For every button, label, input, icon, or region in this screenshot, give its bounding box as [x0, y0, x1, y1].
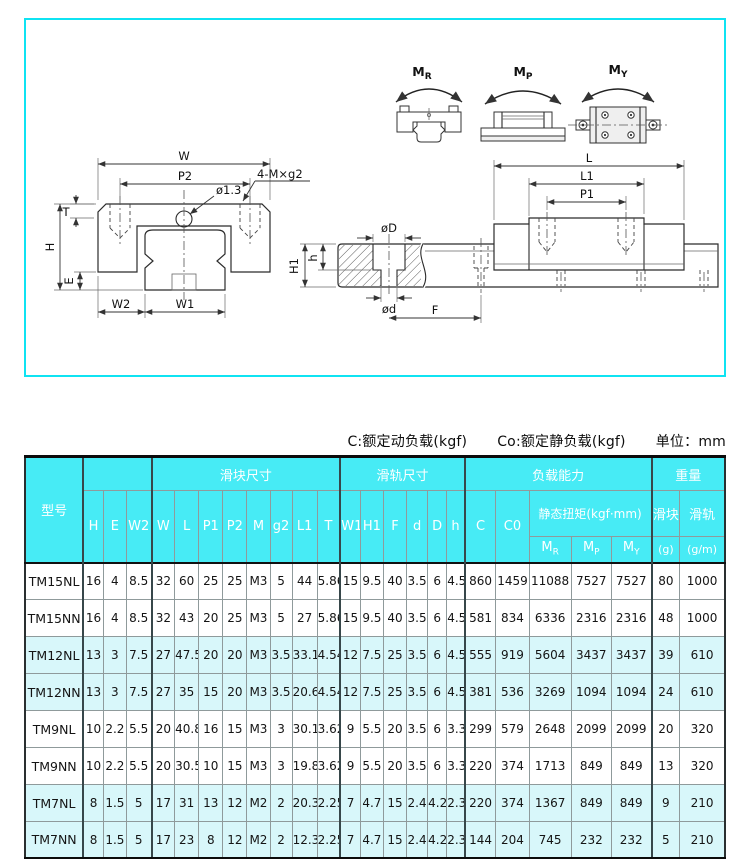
value-cell: 5.5: [126, 748, 151, 785]
value-cell: 13: [83, 674, 103, 711]
value-cell: 48: [652, 600, 680, 637]
value-cell: 1459: [496, 563, 529, 600]
value-cell: 9.5: [360, 600, 383, 637]
value-cell: 5.86: [317, 600, 340, 637]
value-cell: M3: [247, 600, 270, 637]
value-cell: 12: [340, 674, 360, 711]
model-cell: TM9NL: [25, 711, 83, 748]
value-cell: 381: [465, 674, 496, 711]
value-cell: 610: [680, 637, 725, 674]
note-static-load: Co:额定静负载(kgf): [497, 431, 626, 451]
value-cell: 20: [223, 637, 247, 674]
value-cell: 232: [571, 822, 611, 859]
value-cell: 40.8: [175, 711, 199, 748]
value-cell: 2648: [529, 711, 571, 748]
value-cell: 374: [496, 785, 529, 822]
value-cell: 15: [199, 674, 223, 711]
value-cell: 5.5: [126, 711, 151, 748]
value-cell: 20: [383, 748, 406, 785]
value-cell: 40: [383, 600, 406, 637]
value-cell: 3437: [571, 637, 611, 674]
value-cell: 15: [340, 600, 360, 637]
col-c: C: [465, 491, 496, 563]
value-cell: 3269: [529, 674, 571, 711]
value-cell: 20: [652, 711, 680, 748]
value-cell: 7: [340, 785, 360, 822]
col-d-big: D: [428, 491, 447, 563]
group-weight: 重量: [652, 457, 725, 491]
value-cell: 2.25: [317, 822, 340, 859]
col-h: H: [83, 491, 103, 563]
value-cell: M2: [247, 822, 270, 859]
value-cell: 60: [175, 563, 199, 600]
col-m: M: [247, 491, 270, 563]
value-cell: 9: [340, 711, 360, 748]
value-cell: 2099: [611, 711, 651, 748]
value-cell: 555: [465, 637, 496, 674]
col-g2: g2: [270, 491, 292, 563]
value-cell: 5604: [529, 637, 571, 674]
value-cell: 4.5: [447, 674, 465, 711]
value-cell: 12: [223, 785, 247, 822]
value-cell: 7.5: [126, 674, 151, 711]
value-cell: 13: [199, 785, 223, 822]
value-cell: 4.2: [428, 785, 447, 822]
model-cell: TM12NL: [25, 637, 83, 674]
dim-e: E: [62, 277, 76, 284]
table-row: TM9NL102.25.52040.81615M3330.13.6295.520…: [25, 711, 725, 748]
value-cell: 31: [175, 785, 199, 822]
value-cell: 7: [340, 822, 360, 859]
value-cell: 15: [223, 748, 247, 785]
value-cell: 3437: [611, 637, 651, 674]
dim-w2: W2: [112, 297, 131, 311]
side-view: L L1 P1 øD h: [287, 151, 718, 323]
value-cell: 20: [199, 600, 223, 637]
value-cell: 25: [223, 563, 247, 600]
col-l: L: [175, 491, 199, 563]
technical-drawing: MR MP: [26, 20, 724, 375]
value-cell: 20: [223, 674, 247, 711]
value-cell: 39: [652, 637, 680, 674]
value-cell: 3.62: [317, 748, 340, 785]
value-cell: 4: [103, 563, 126, 600]
model-cell: TM9NN: [25, 748, 83, 785]
value-cell: 1000: [680, 563, 725, 600]
value-cell: 610: [680, 674, 725, 711]
model-cell: TM15NN: [25, 600, 83, 637]
value-cell: 6336: [529, 600, 571, 637]
value-cell: 3.5: [407, 748, 428, 785]
value-cell: 12: [223, 822, 247, 859]
dim-h: H: [43, 243, 57, 252]
value-cell: 15: [340, 563, 360, 600]
dim-w: W: [178, 149, 189, 163]
value-cell: 849: [571, 748, 611, 785]
value-cell: 1000: [680, 600, 725, 637]
value-cell: 1.5: [103, 785, 126, 822]
value-cell: 3: [270, 748, 292, 785]
col-h-small: h: [447, 491, 465, 563]
units-note: C:额定动负载(kgf) Co:额定静负载(kgf) 单位：mm: [24, 431, 726, 451]
col-mr: MR: [529, 537, 571, 563]
col-weight-rail-unit: (g/m): [680, 537, 725, 563]
value-cell: 6: [428, 600, 447, 637]
group-model: 型号: [25, 457, 83, 563]
value-cell: M3: [247, 711, 270, 748]
col-static-torque: 静态扭矩(kgf·mm): [529, 491, 652, 537]
col-h1: H1: [360, 491, 383, 563]
value-cell: 3.3: [447, 711, 465, 748]
table-row: TM9NN102.25.52030.51015M3319.83.6295.520…: [25, 748, 725, 785]
drawing-frame: MR MP: [24, 18, 726, 377]
value-cell: 4.7: [360, 785, 383, 822]
value-cell: 5.86: [317, 563, 340, 600]
value-cell: 1094: [571, 674, 611, 711]
dim-p2: P2: [178, 169, 192, 183]
value-cell: 20: [383, 711, 406, 748]
dim-l1: L1: [580, 169, 594, 183]
value-cell: M3: [247, 637, 270, 674]
value-cell: 2.3: [447, 822, 465, 859]
value-cell: 2099: [571, 711, 611, 748]
value-cell: 7527: [611, 563, 651, 600]
value-cell: 5.5: [360, 748, 383, 785]
value-cell: 25: [383, 674, 406, 711]
value-cell: 3.62: [317, 711, 340, 748]
value-cell: 579: [496, 711, 529, 748]
col-w2: W2: [126, 491, 151, 563]
value-cell: 2316: [611, 600, 651, 637]
value-cell: 8: [83, 785, 103, 822]
col-d: d: [407, 491, 428, 563]
value-cell: 3: [270, 711, 292, 748]
note-unit: 单位：mm: [656, 431, 726, 451]
dim-h-small: h: [306, 254, 320, 261]
value-cell: 3.3: [447, 748, 465, 785]
value-cell: 20: [152, 711, 175, 748]
value-cell: 17: [152, 785, 175, 822]
value-cell: 320: [680, 711, 725, 748]
value-cell: 12: [340, 637, 360, 674]
col-f: F: [383, 491, 406, 563]
value-cell: 220: [465, 748, 496, 785]
value-cell: 2316: [571, 600, 611, 637]
value-cell: 24: [652, 674, 680, 711]
value-cell: 3.5: [407, 637, 428, 674]
dim-h1: H1: [287, 258, 301, 274]
value-cell: 7.5: [360, 674, 383, 711]
value-cell: 7.5: [360, 637, 383, 674]
value-cell: 3.5: [407, 563, 428, 600]
value-cell: 4.7: [360, 822, 383, 859]
value-cell: 232: [611, 822, 651, 859]
value-cell: 32: [152, 563, 175, 600]
table-row: TM7NN81.551723812M2212.32.2574.7152.44.2…: [25, 822, 725, 859]
value-cell: 15: [223, 711, 247, 748]
value-cell: 374: [496, 748, 529, 785]
value-cell: 20: [199, 637, 223, 674]
model-cell: TM7NL: [25, 785, 83, 822]
value-cell: 15: [383, 785, 406, 822]
value-cell: 849: [571, 785, 611, 822]
value-cell: 12.3: [292, 822, 317, 859]
value-cell: 8.5: [126, 600, 151, 637]
value-cell: 16: [83, 600, 103, 637]
value-cell: 4.2: [428, 822, 447, 859]
value-cell: 5: [126, 822, 151, 859]
value-cell: 1713: [529, 748, 571, 785]
value-cell: 8.5: [126, 563, 151, 600]
group-hew2-empty: [83, 457, 151, 491]
value-cell: 4.54: [317, 674, 340, 711]
value-cell: 13: [652, 748, 680, 785]
dim-d-small: ød: [382, 302, 396, 316]
value-cell: 20: [152, 748, 175, 785]
dim-w1: W1: [176, 297, 195, 311]
svg-text:MR: MR: [412, 64, 431, 82]
value-cell: 1367: [529, 785, 571, 822]
col-p1: P1: [199, 491, 223, 563]
group-load-capacity: 负载能力: [465, 457, 652, 491]
note-dynamic-load: C:额定动负载(kgf): [347, 431, 467, 451]
value-cell: 3.5: [407, 711, 428, 748]
value-cell: 40: [383, 563, 406, 600]
moment-mr-icon: MR: [396, 64, 462, 142]
col-mp: MP: [571, 537, 611, 563]
value-cell: 32: [152, 600, 175, 637]
col-weight-block: 滑块: [652, 491, 680, 537]
value-cell: 2.4: [407, 822, 428, 859]
value-cell: 6: [428, 563, 447, 600]
dim-l: L: [586, 151, 593, 165]
value-cell: 320: [680, 748, 725, 785]
value-cell: 30.1: [292, 711, 317, 748]
value-cell: 20.6: [292, 674, 317, 711]
value-cell: 8: [83, 822, 103, 859]
value-cell: 27: [292, 600, 317, 637]
spec-table-body: TM15NL1648.532602525M35445.86159.5403.56…: [25, 563, 725, 859]
value-cell: 849: [611, 785, 651, 822]
value-cell: 2.2: [103, 748, 126, 785]
value-cell: 6: [428, 748, 447, 785]
value-cell: 16: [199, 711, 223, 748]
value-cell: 4.54: [317, 637, 340, 674]
model-cell: TM7NN: [25, 822, 83, 859]
value-cell: 4.5: [447, 600, 465, 637]
model-cell: TM12NN: [25, 674, 83, 711]
value-cell: 30.5: [175, 748, 199, 785]
value-cell: 9: [652, 785, 680, 822]
col-t: T: [317, 491, 340, 563]
value-cell: 2.4: [407, 785, 428, 822]
dim-d-big: øD: [381, 221, 397, 235]
value-cell: 27: [152, 637, 175, 674]
group-rail-dims: 滑轨尺寸: [340, 457, 465, 491]
value-cell: 3.5: [270, 674, 292, 711]
front-view: W P2 ø1.3 4-M×g2 T: [43, 149, 310, 318]
value-cell: 11088: [529, 563, 571, 600]
value-cell: 849: [611, 748, 651, 785]
value-cell: 745: [529, 822, 571, 859]
dim-p1: P1: [580, 187, 594, 201]
col-p2: P2: [223, 491, 247, 563]
value-cell: 919: [496, 637, 529, 674]
value-cell: 25: [383, 637, 406, 674]
value-cell: 3.5: [407, 600, 428, 637]
value-cell: 5: [126, 785, 151, 822]
dim-t: T: [61, 205, 70, 219]
value-cell: 17: [152, 822, 175, 859]
value-cell: 3.5: [407, 674, 428, 711]
value-cell: M3: [247, 563, 270, 600]
col-l1: L1: [292, 491, 317, 563]
value-cell: 4.5: [447, 637, 465, 674]
value-cell: 536: [496, 674, 529, 711]
value-cell: 3.5: [270, 637, 292, 674]
value-cell: 10: [83, 711, 103, 748]
value-cell: 204: [496, 822, 529, 859]
value-cell: 23: [175, 822, 199, 859]
value-cell: 3: [103, 674, 126, 711]
table-row: TM15NN1648.532432025M35275.86159.5403.56…: [25, 600, 725, 637]
value-cell: 4.5: [447, 563, 465, 600]
value-cell: 210: [680, 785, 725, 822]
value-cell: 19.8: [292, 748, 317, 785]
value-cell: 144: [465, 822, 496, 859]
svg-text:MY: MY: [609, 62, 628, 80]
value-cell: 44: [292, 563, 317, 600]
col-e: E: [103, 491, 126, 563]
col-my: MY: [611, 537, 651, 563]
value-cell: 13: [83, 637, 103, 674]
value-cell: 8: [199, 822, 223, 859]
table-row: TM12NL1337.52747.52020M33.533.14.54127.5…: [25, 637, 725, 674]
value-cell: 27: [152, 674, 175, 711]
value-cell: 9.5: [360, 563, 383, 600]
value-cell: 2: [270, 822, 292, 859]
value-cell: 1.5: [103, 822, 126, 859]
value-cell: 1094: [611, 674, 651, 711]
value-cell: 25: [223, 600, 247, 637]
value-cell: 834: [496, 600, 529, 637]
value-cell: M2: [247, 785, 270, 822]
value-cell: 2.3: [447, 785, 465, 822]
value-cell: 5: [652, 822, 680, 859]
value-cell: 6: [428, 637, 447, 674]
moment-mp-icon: MP: [481, 64, 565, 141]
value-cell: 860: [465, 563, 496, 600]
value-cell: 20.3: [292, 785, 317, 822]
value-cell: 35: [175, 674, 199, 711]
dim-hole: ø1.3: [216, 183, 241, 197]
col-c0: C0: [496, 491, 529, 563]
group-slider-dims: 滑块尺寸: [152, 457, 341, 491]
table-row: TM12NN1337.527351520M33.520.64.54127.525…: [25, 674, 725, 711]
value-cell: 4: [103, 600, 126, 637]
table-row: TM7NL81.5517311312M2220.32.2574.7152.44.…: [25, 785, 725, 822]
col-weight-block-unit: (g): [652, 537, 680, 563]
dim-f: F: [432, 303, 439, 317]
value-cell: 80: [652, 563, 680, 600]
value-cell: 6: [428, 711, 447, 748]
value-cell: 10: [83, 748, 103, 785]
value-cell: 43: [175, 600, 199, 637]
value-cell: 9: [340, 748, 360, 785]
value-cell: 16: [83, 563, 103, 600]
col-w: W: [152, 491, 175, 563]
value-cell: 299: [465, 711, 496, 748]
value-cell: 2: [270, 785, 292, 822]
value-cell: 210: [680, 822, 725, 859]
value-cell: 6: [428, 674, 447, 711]
value-cell: 33.1: [292, 637, 317, 674]
value-cell: 15: [383, 822, 406, 859]
model-cell: TM15NL: [25, 563, 83, 600]
value-cell: 220: [465, 785, 496, 822]
moment-my-icon: MY: [568, 62, 668, 143]
value-cell: M3: [247, 674, 270, 711]
value-cell: 25: [199, 563, 223, 600]
dim-screw: 4-M×g2: [257, 167, 303, 181]
value-cell: 581: [465, 600, 496, 637]
value-cell: 7527: [571, 563, 611, 600]
value-cell: 10: [199, 748, 223, 785]
value-cell: 2.25: [317, 785, 340, 822]
table-row: TM15NL1648.532602525M35445.86159.5403.56…: [25, 563, 725, 600]
value-cell: 5: [270, 563, 292, 600]
value-cell: 5: [270, 600, 292, 637]
value-cell: M3: [247, 748, 270, 785]
value-cell: 47.5: [175, 637, 199, 674]
col-weight-rail: 滑轨: [680, 491, 725, 537]
spec-table: 型号 滑块尺寸 滑轨尺寸 负载能力 重量 H E W2 W L P1 P2 M …: [24, 455, 726, 859]
svg-text:MP: MP: [513, 64, 532, 82]
value-cell: 2.2: [103, 711, 126, 748]
value-cell: 3: [103, 637, 126, 674]
col-w1: W1: [340, 491, 360, 563]
value-cell: 5.5: [360, 711, 383, 748]
value-cell: 7.5: [126, 637, 151, 674]
datasheet-page: MR MP: [0, 0, 740, 859]
